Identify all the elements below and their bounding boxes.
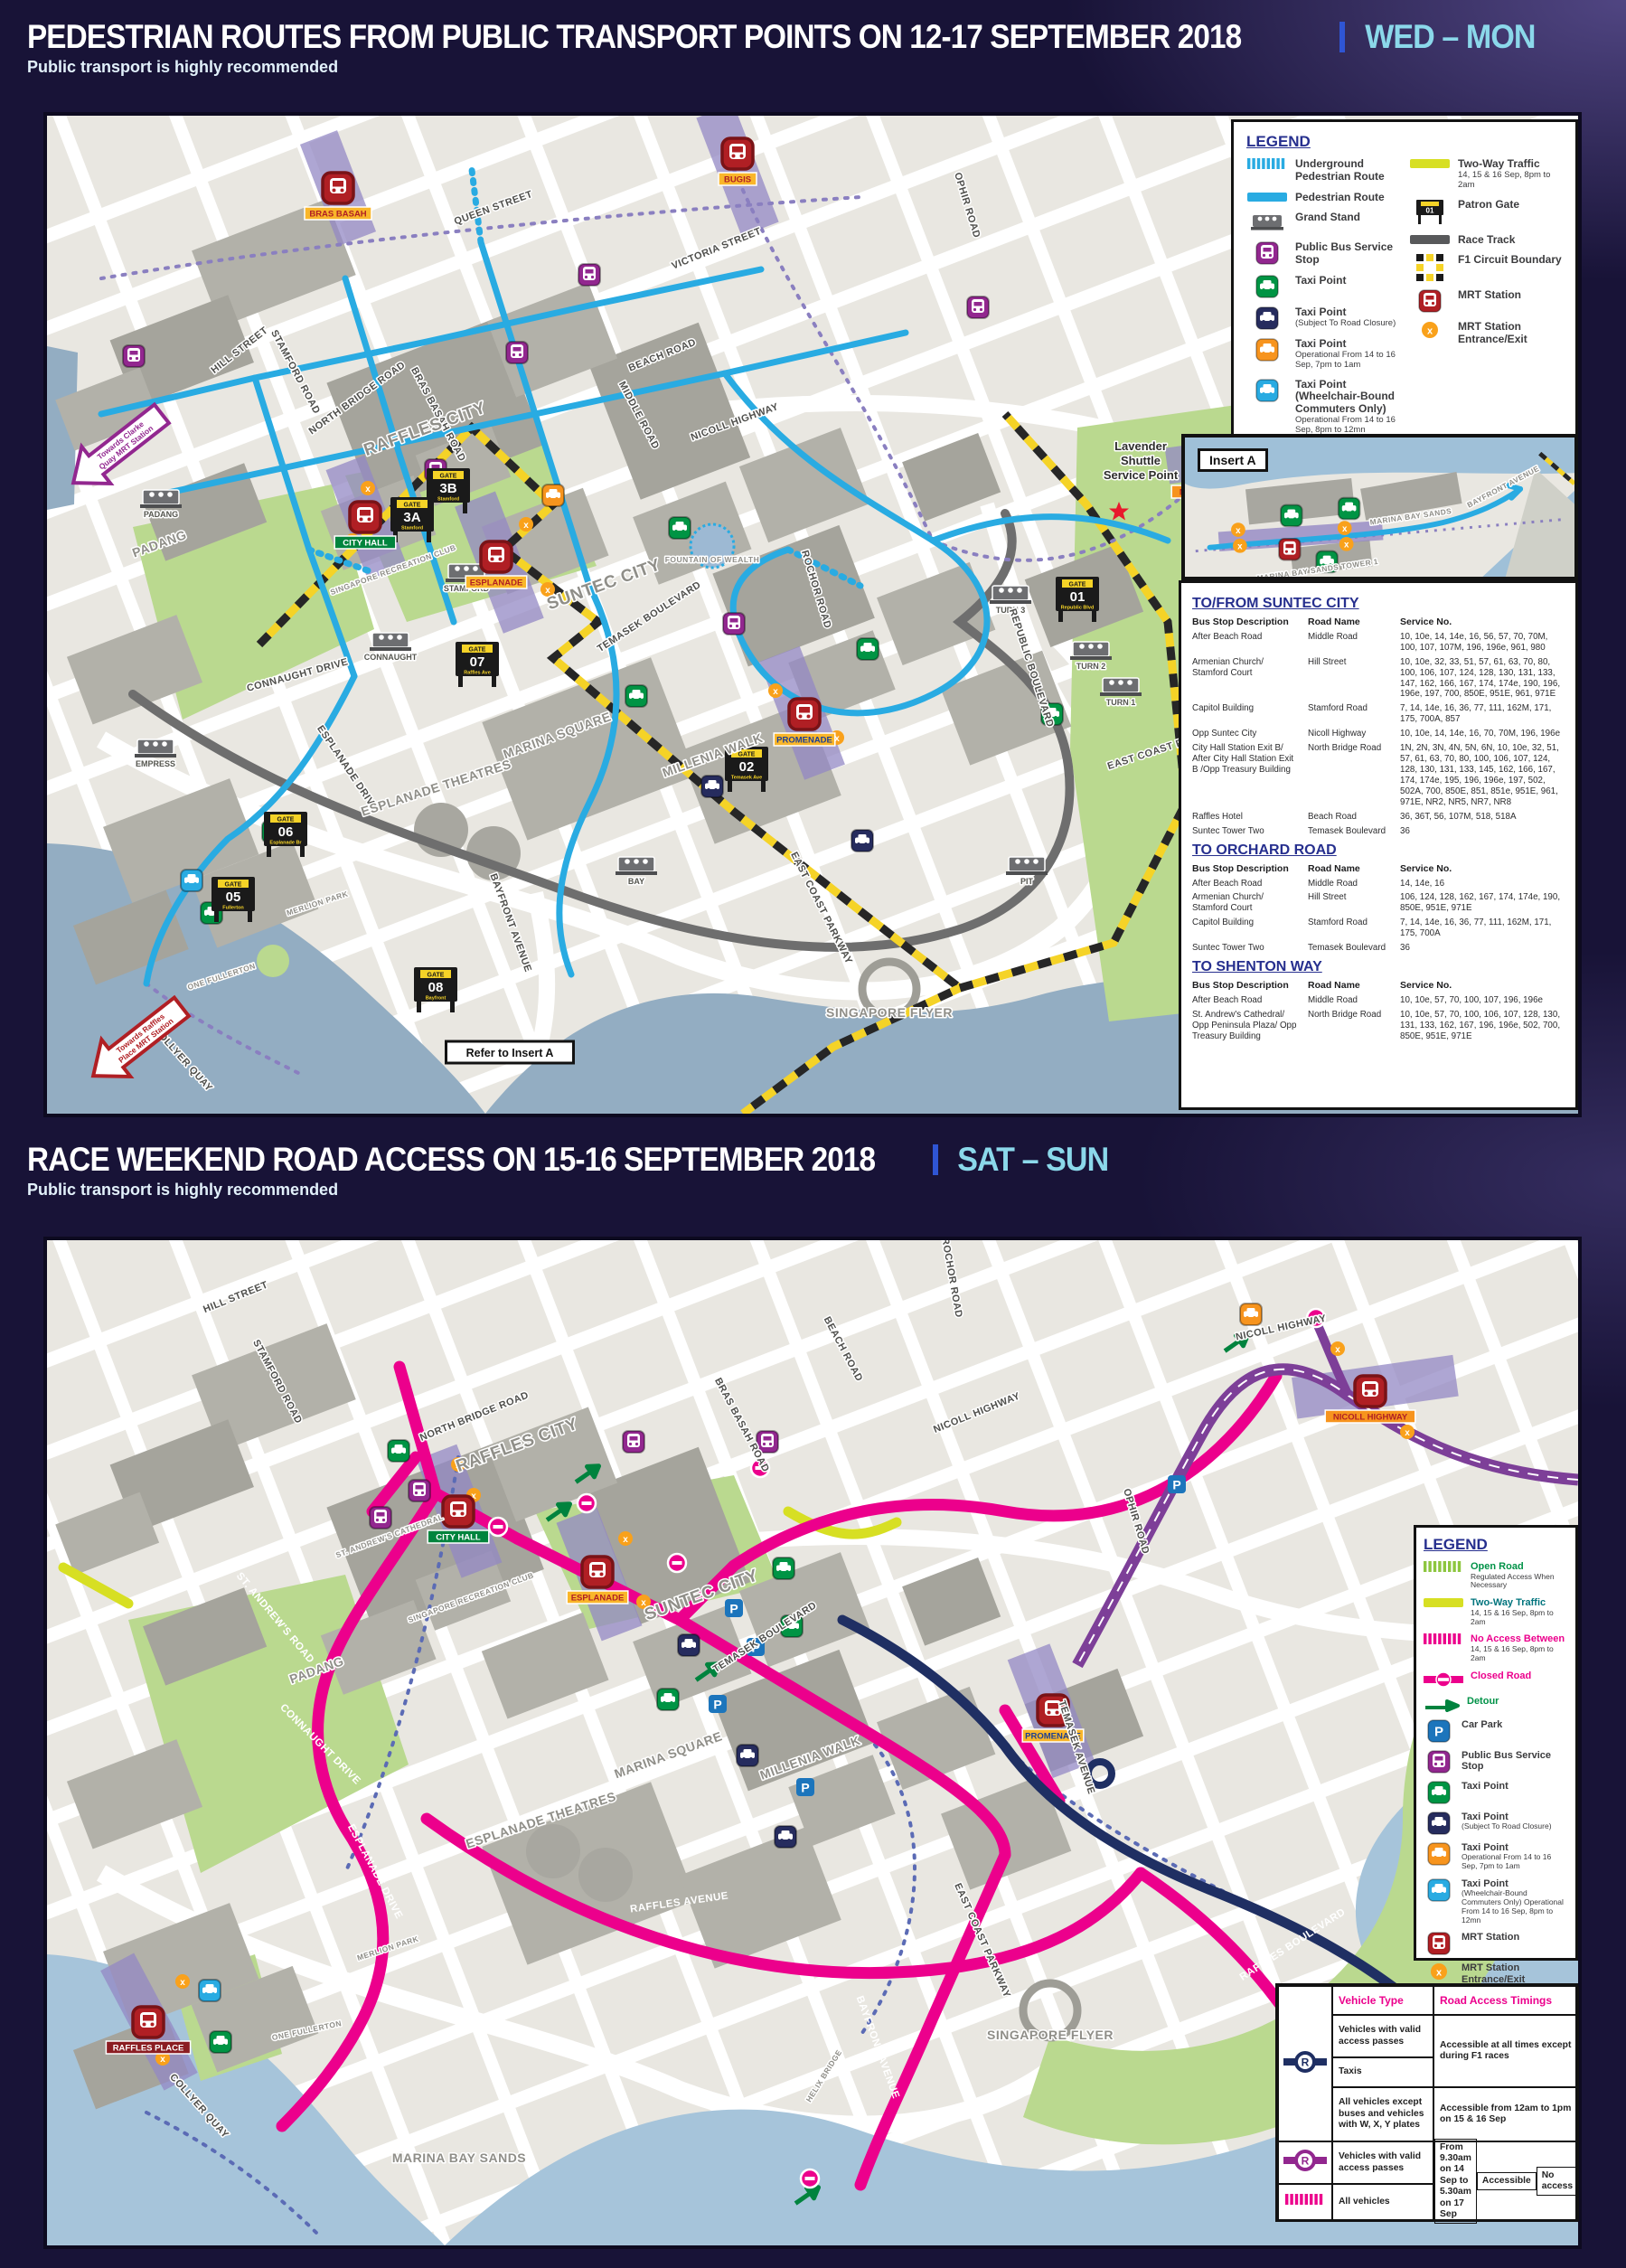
shuttle-note: Shuttle xyxy=(1121,454,1161,467)
bus-table-row: St. Andrew's Cathedral/ Opp Peninsula Pl… xyxy=(1192,1008,1565,1044)
map-label: FOUNTAIN OF WEALTH xyxy=(665,555,760,564)
svg-text:PADANG: PADANG xyxy=(144,510,178,519)
map1-legend: LEGEND Underground Pedestrian RoutePedes… xyxy=(1231,119,1578,438)
x-icon: x xyxy=(1338,521,1352,535)
legend-item-note: Regulated Access When Necessary xyxy=(1471,1573,1568,1591)
legend-item-label: MRT Station xyxy=(1458,289,1521,302)
service-numbers: 10, 10e, 57, 70, 100, 107, 196, 196e xyxy=(1400,995,1565,1006)
svg-text:CONNAUGHT: CONNAUGHT xyxy=(364,653,418,662)
road-navy-icon: R xyxy=(1278,1986,1332,2141)
svg-text:05: 05 xyxy=(226,889,241,905)
svg-text:Bayfront: Bayfront xyxy=(426,996,446,1002)
station-name: RAFFLES PLACE xyxy=(113,2044,184,2054)
svg-text:TURN 1: TURN 1 xyxy=(1106,698,1136,707)
road-access-table: R Vehicle Type Road Access Timings Vehic… xyxy=(1275,1983,1578,2222)
road-name: Nicoll Highway xyxy=(1308,729,1393,739)
legend-item-label: Public Bus Service Stop xyxy=(1462,1750,1568,1773)
legend-item-note: Operational From 14 to 16 Sep, 7pm to 1a… xyxy=(1462,1853,1568,1871)
legend-item: 01Patron Gate xyxy=(1409,199,1563,226)
x-icon: x xyxy=(1400,1425,1415,1439)
legend-item: Taxi Point(Subject To Road Closure) xyxy=(1424,1812,1568,1835)
pedestrian-route-icon xyxy=(1246,192,1288,202)
ring-icon xyxy=(801,2169,819,2188)
legend-item-label: No Access Between14, 15 & 16 Sep, 8pm to… xyxy=(1471,1633,1568,1662)
bus-table-row: After Beach RoadMiddle Road10, 10e, 14, … xyxy=(1192,630,1565,655)
station-name: BRAS BASAH xyxy=(309,210,366,220)
taxi-green-icon xyxy=(1246,275,1288,298)
road-name: North Bridge Road xyxy=(1308,743,1393,808)
legend-item: Taxi Point xyxy=(1246,275,1400,298)
svg-text:TURN 2: TURN 2 xyxy=(1076,662,1106,671)
section1-header: PEDESTRIAN ROUTES FROM PUBLIC TRANSPORT … xyxy=(27,18,1543,77)
road-name: Hill Street xyxy=(1308,892,1393,914)
legend-item-label: F1 Circuit Boundary xyxy=(1458,254,1562,267)
bus-table-title: TO/FROM SUNTEC CITY xyxy=(1192,596,1565,612)
bus-stop-description: Capitol Building xyxy=(1192,703,1301,725)
bus-stop-description: St. Andrew's Cathedral/ Opp Peninsula Pl… xyxy=(1192,1010,1301,1042)
bus-icon xyxy=(506,342,528,363)
service-numbers: 10, 10e, 14, 14e, 16, 70, 70M, 196, 196e xyxy=(1400,729,1565,739)
svg-text:PIT: PIT xyxy=(1020,877,1034,886)
legend-item: Detour xyxy=(1424,1696,1568,1712)
service-numbers: 10, 10e, 14, 14e, 16, 56, 57, 70, 70M, 1… xyxy=(1400,632,1565,654)
service-numbers: 36 xyxy=(1400,826,1565,837)
taxi-green-icon xyxy=(1281,505,1302,527)
bus-table-title: TO SHENTON WAY xyxy=(1192,959,1565,975)
bus-table-row: Capitol BuildingStamford Road7, 14, 14e,… xyxy=(1192,701,1565,727)
timing-cell: Accessible from 12am to 1pm on 15 & 16 S… xyxy=(1433,2087,1579,2141)
section1-subtitle: Public transport is highly recommended xyxy=(27,58,1543,77)
legend-item-note: 14, 15 & 16 Sep, 8pm to 2am xyxy=(1471,1609,1568,1627)
two-way-icon xyxy=(1424,1597,1463,1608)
underground-route-icon xyxy=(1246,158,1288,171)
svg-text:GATE: GATE xyxy=(404,503,421,509)
legend-item-note: 14, 15 & 16 Sep, 8pm to 2am xyxy=(1458,171,1563,191)
taxi-green-icon xyxy=(1339,498,1360,520)
race-track-icon xyxy=(1409,234,1451,245)
bus-table-header: Service No. xyxy=(1400,616,1565,628)
legend-item-label: Taxi Point(Wheelchair-Bound Commuters On… xyxy=(1462,1878,1568,1925)
bus-icon xyxy=(623,1431,644,1453)
svg-text:x: x xyxy=(1436,1968,1443,1979)
svg-text:GATE: GATE xyxy=(469,647,486,654)
x-icon: x xyxy=(519,517,533,532)
legend-item: Taxi Point(Wheelchair-Bound Commuters On… xyxy=(1424,1878,1568,1925)
legend-item-label: Underground Pedestrian Route xyxy=(1295,158,1400,184)
legend-item: Race Track xyxy=(1409,234,1563,247)
bus-table-row: City Hall Station Exit B/ After City Hal… xyxy=(1192,741,1565,810)
map-label: SINGAPORE FLYER xyxy=(987,2028,1114,2042)
x-icon: x xyxy=(1233,539,1247,553)
taxi-blue-icon xyxy=(181,870,202,891)
bus-stop-description: City Hall Station Exit B/ After City Hal… xyxy=(1192,743,1301,808)
two-way-icon xyxy=(1409,158,1451,169)
svg-text:x: x xyxy=(523,521,529,531)
legend-item-label: Taxi Point(Subject To Road Closure) xyxy=(1462,1812,1552,1831)
svg-text:x: x xyxy=(160,2055,165,2065)
mrt-station: BUGIS xyxy=(719,138,757,185)
insert-a-panel: xxxx MARINA BAY SANDSBAYFRONT AVENUEMARI… xyxy=(1181,434,1578,580)
section1-title: PEDESTRIAN ROUTES FROM PUBLIC TRANSPORT … xyxy=(27,18,1241,56)
svg-text:BAY: BAY xyxy=(628,877,644,886)
legend-item-label: MRT Station Entrance/Exit xyxy=(1462,1962,1568,1985)
road-name: Beach Road xyxy=(1308,812,1393,823)
mrt-icon xyxy=(1279,539,1301,560)
vehicle-type-cell: All vehicles except buses and vehicles w… xyxy=(1332,2087,1433,2141)
legend-item-label: Race Track xyxy=(1458,234,1515,247)
section2-header: RACE WEEKEND ROAD ACCESS ON 15-16 SEPTEM… xyxy=(27,1141,1115,1200)
legend-item: PCar Park xyxy=(1424,1719,1568,1743)
mrt-icon xyxy=(1409,289,1451,313)
taxi-orange-icon xyxy=(1424,1842,1454,1866)
legend-item: MRT Station xyxy=(1424,1932,1568,1955)
road-name: Stamford Road xyxy=(1308,918,1393,939)
svg-text:x: x xyxy=(180,1978,185,1988)
legend-item: Taxi Point (Wheelchair-Bound Commuters O… xyxy=(1246,379,1400,436)
taxi-navy-icon xyxy=(1246,306,1288,330)
no-access-icon xyxy=(1424,1633,1463,1646)
taxi-green-icon xyxy=(657,1689,679,1710)
bus-icon xyxy=(370,1507,391,1529)
legend-item-label: Car Park xyxy=(1462,1719,1502,1731)
road-name: Middle Road xyxy=(1308,995,1393,1006)
x-icon: x xyxy=(1231,522,1245,537)
legend-item-label: MRT Station Entrance/Exit xyxy=(1458,321,1563,346)
vehicle-type-cell: Vehicles with valid access passes xyxy=(1332,2141,1433,2184)
station-name: CITY HALL xyxy=(436,1533,481,1543)
svg-text:GATE: GATE xyxy=(738,752,756,758)
car-park-icon: P xyxy=(1424,1719,1454,1743)
svg-text:3A: 3A xyxy=(403,510,420,525)
legend-item-label: Taxi PointOperational From 14 to 16 Sep,… xyxy=(1462,1842,1568,1871)
bus-stop-description: After Beach Road xyxy=(1192,632,1301,654)
grand-stand-icon: PADANG xyxy=(140,490,182,519)
taxi-navy-icon xyxy=(1424,1812,1454,1835)
legend-item: Pedestrian Route xyxy=(1246,192,1400,204)
map2-panel: PPPPPxxxxxxxx CITY HALLESPLANADEPROMENAD… xyxy=(43,1237,1582,2249)
road-name: Stamford Road xyxy=(1308,703,1393,725)
bus-table-row: Raffles HotelBeach Road36, 36T, 56, 107M… xyxy=(1192,810,1565,824)
poster: PEDESTRIAN ROUTES FROM PUBLIC TRANSPORT … xyxy=(0,0,1626,2268)
dash-bar xyxy=(1424,1633,1463,1646)
legend-item: Closed Road xyxy=(1424,1670,1568,1689)
taxi-navy-icon xyxy=(851,830,873,852)
bus-table-row: Capitol BuildingStamford Road7, 14, 14e,… xyxy=(1192,916,1565,941)
svg-text:x: x xyxy=(1405,1428,1410,1438)
title-divider-2 xyxy=(933,1144,938,1175)
mrt-icon xyxy=(1424,1932,1454,1955)
bus-icon xyxy=(409,1480,430,1501)
legend-item: MRT Station xyxy=(1409,289,1563,313)
legend-item-label: Pedestrian Route xyxy=(1295,192,1385,204)
taxi-green-icon xyxy=(1424,1781,1454,1804)
svg-text:x: x xyxy=(623,1535,628,1545)
legend-item: Open RoadRegulated Access When Necessary xyxy=(1424,1561,1568,1590)
bus-table-row: Suntec Tower TwoTemasek Boulevard36 xyxy=(1192,824,1565,839)
legend-item-label: Taxi Point xyxy=(1295,275,1346,287)
bus-stop-icon xyxy=(1246,241,1288,265)
ring-icon xyxy=(578,1494,596,1512)
p-icon: P xyxy=(1168,1475,1186,1493)
ring-icon xyxy=(489,1518,507,1536)
x-icon: x xyxy=(618,1531,633,1546)
bus-stop-description: Suntec Tower Two xyxy=(1192,826,1301,837)
bus-table-header: Service No. xyxy=(1400,863,1565,875)
refer-insert-a-label: Refer to Insert A xyxy=(466,1047,554,1059)
svg-text:P: P xyxy=(1434,1724,1443,1739)
svg-text:x: x xyxy=(1342,524,1348,534)
legend-item-note: Operational From 14 to 16 Sep, 7pm to 1a… xyxy=(1295,351,1400,371)
legend-item-label: Two-Way Traffic14, 15 & 16 Sep, 8pm to 2… xyxy=(1458,158,1563,191)
legend-item: Underground Pedestrian Route xyxy=(1246,158,1400,184)
legend-item-label: Patron Gate xyxy=(1458,199,1519,212)
vehicle-type-header: Vehicle Type xyxy=(1332,1986,1433,2015)
patron-gate-icon: 01 xyxy=(1409,199,1451,226)
svg-text:x: x xyxy=(1427,326,1433,337)
bus-tables-panel: TO/FROM SUNTEC CITYBus Stop DescriptionR… xyxy=(1179,580,1578,1110)
timing-cell: Accessible at all times except during F1… xyxy=(1433,2015,1579,2087)
service-numbers: 1N, 2N, 3N, 4N, 5N, 6N, 10, 10e, 32, 51,… xyxy=(1400,743,1565,808)
svg-text:R: R xyxy=(1302,2056,1310,2068)
bus-table-header-row: Bus Stop DescriptionRoad NameService No. xyxy=(1192,978,1565,993)
svg-text:Raffles Ave: Raffles Ave xyxy=(464,671,491,676)
legend-item-label: Two-Way Traffic14, 15 & 16 Sep, 8pm to 2… xyxy=(1471,1597,1568,1626)
grand-stand-icon: TURN 2 xyxy=(1070,642,1112,671)
legend-item: Public Bus Service Stop xyxy=(1424,1750,1568,1774)
legend-item: Two-Way Traffic14, 15 & 16 Sep, 8pm to 2… xyxy=(1424,1597,1568,1626)
timing-cell: From 9.30am on 14 Sep to 5.30am on 17 Se… xyxy=(1434,2139,1477,2224)
x-icon: x xyxy=(1330,1341,1345,1356)
svg-text:GATE: GATE xyxy=(1069,582,1086,588)
svg-text:3B: 3B xyxy=(439,481,456,496)
bus-table-header: Road Name xyxy=(1308,980,1393,992)
legend-item: F1 Circuit Boundary xyxy=(1409,254,1563,281)
svg-text:x: x xyxy=(365,485,371,494)
svg-text:P: P xyxy=(713,1698,721,1712)
taxi-navy-icon xyxy=(775,1826,796,1848)
map1-panel: xxxxxx PADANGCONNAUGHTSTAMFORDEMPRESSBAY… xyxy=(43,112,1582,1117)
taxi-orange-icon xyxy=(1240,1303,1262,1325)
legend-item-note: 14, 15 & 16 Sep, 8pm to 2am xyxy=(1471,1645,1568,1663)
svg-text:x: x xyxy=(1335,1345,1340,1355)
bus-table-header: Bus Stop Description xyxy=(1192,980,1301,992)
map2-legend: LEGEND Open RoadRegulated Access When Ne… xyxy=(1414,1525,1578,1961)
bus-table-header-row: Bus Stop DescriptionRoad NameService No. xyxy=(1192,615,1565,630)
svg-text:x: x xyxy=(1236,526,1241,536)
road-access-timings-header: Road Access Timings xyxy=(1433,1986,1579,2015)
svg-text:Fullerton: Fullerton xyxy=(222,906,244,911)
service-numbers: 106, 124, 128, 162, 167, 174, 174e, 190,… xyxy=(1400,892,1565,914)
svg-text:P: P xyxy=(729,1602,738,1616)
service-numbers: 14, 14e, 16 xyxy=(1400,879,1565,889)
legend-item-label: MRT Station xyxy=(1462,1932,1519,1943)
svg-text:P: P xyxy=(801,1781,809,1795)
svg-text:02: 02 xyxy=(739,759,755,775)
p-icon: P xyxy=(796,1778,814,1796)
legend-item: xMRT Station Entrance/Exit xyxy=(1424,1962,1568,1985)
road-purple-icon: R xyxy=(1278,2141,1332,2184)
taxi-navy-icon xyxy=(701,776,723,797)
legend-item-label: Open RoadRegulated Access When Necessary xyxy=(1471,1561,1568,1590)
svg-text:GATE: GATE xyxy=(440,474,457,480)
legend-item-note: (Subject To Road Closure) xyxy=(1462,1822,1552,1831)
service-numbers: 7, 14, 14e, 16, 36, 77, 111, 162M, 171, … xyxy=(1400,703,1565,725)
svg-text:Esplanade Br: Esplanade Br xyxy=(269,841,302,846)
timing-split-cell: From 9.30am on 14 Sep to 5.30am on 17 Se… xyxy=(1433,2141,1579,2221)
legend-item: Public Bus Service Stop xyxy=(1246,241,1400,267)
station-name: ESPLANADE xyxy=(470,579,523,588)
svg-text:x: x xyxy=(773,687,778,697)
dash-bar xyxy=(1247,158,1287,171)
bus-icon xyxy=(967,296,989,318)
road-name: Middle Road xyxy=(1308,879,1393,889)
section2-subtitle: Public transport is highly recommended xyxy=(27,1181,1115,1200)
bus-stop-description: After Beach Road xyxy=(1192,879,1301,889)
svg-text:R: R xyxy=(1302,2155,1310,2168)
taxi-green-icon xyxy=(388,1440,409,1462)
taxi-green-icon xyxy=(625,685,647,707)
bus-table-row: Suntec Tower TwoTemasek Boulevard36 xyxy=(1192,941,1565,955)
section2-title: RACE WEEKEND ROAD ACCESS ON 15-16 SEPTEM… xyxy=(27,1141,875,1179)
taxi-blue-icon xyxy=(1246,379,1288,402)
insert-a-title: Insert A xyxy=(1198,448,1268,472)
grand-stand-icon: TURN 1 xyxy=(1100,678,1142,707)
p-icon: P xyxy=(725,1599,743,1617)
taxi-green-icon xyxy=(210,2031,231,2053)
bus-stop-description: Opp Suntec City xyxy=(1192,729,1301,739)
section2-days: SAT – SUN xyxy=(958,1141,1109,1179)
esplanade-theatre xyxy=(526,1824,580,1878)
shuttle-note: Service Point xyxy=(1104,468,1179,482)
svg-text:Stamford: Stamford xyxy=(401,526,423,532)
bus-icon xyxy=(123,345,145,367)
map-label: SINGAPORE FLYER xyxy=(826,1005,953,1020)
closed-road-icon xyxy=(1424,1670,1463,1689)
road-name: Hill Street xyxy=(1308,657,1393,701)
svg-text:Republic Blvd: Republic Blvd xyxy=(1061,606,1095,611)
x-icon: x xyxy=(768,683,783,698)
legend-item-label: Detour xyxy=(1467,1696,1499,1708)
mrt-exit-icon: x xyxy=(1424,1962,1454,1981)
road-name: Temasek Boulevard xyxy=(1308,943,1393,954)
vehicle-type-cell: Vehicles with valid access passes xyxy=(1332,2015,1433,2057)
road-name: North Bridge Road xyxy=(1308,1010,1393,1042)
vehicle-type-cell: Taxis xyxy=(1332,2057,1433,2087)
shuttle-note: Lavender xyxy=(1114,439,1167,453)
bus-stop-icon xyxy=(1424,1750,1454,1774)
svg-text:GATE: GATE xyxy=(225,882,242,889)
taxi-navy-icon xyxy=(737,1745,758,1766)
svg-text:x: x xyxy=(1344,541,1349,551)
bus-table-header: Bus Stop Description xyxy=(1192,863,1301,875)
legend-item: Taxi Point xyxy=(1424,1781,1568,1804)
legend-item: Grand Stand xyxy=(1246,212,1400,233)
map-label: MARINA BAY SANDS xyxy=(392,2150,526,2165)
legend-item: No Access Between14, 15 & 16 Sep, 8pm to… xyxy=(1424,1633,1568,1662)
taxi-blue-icon xyxy=(199,1980,221,2001)
legend-item-note: (Subject To Road Closure) xyxy=(1295,319,1396,329)
service-numbers: 10, 10e, 57, 70, 100, 106, 107, 128, 130… xyxy=(1400,1010,1565,1042)
station-name: CITY HALL xyxy=(343,539,388,549)
detour-icon xyxy=(1424,1696,1460,1712)
svg-text:Temasek Ave: Temasek Ave xyxy=(731,776,762,781)
legend-item-label: Closed Road xyxy=(1471,1670,1531,1682)
bus-icon xyxy=(578,264,600,286)
bus-table-row: Armenian Church/ Stamford CourtHill Stre… xyxy=(1192,890,1565,916)
legend1-title: LEGEND xyxy=(1246,133,1563,151)
x-icon: x xyxy=(1339,537,1354,551)
bus-table-header: Road Name xyxy=(1308,616,1393,628)
legend2-title: LEGEND xyxy=(1424,1536,1568,1554)
bus-table-row: After Beach RoadMiddle Road14, 14e, 16 xyxy=(1192,877,1565,891)
svg-text:06: 06 xyxy=(278,824,294,840)
no-access-icon xyxy=(1278,2184,1332,2221)
bus-stop-description: Armenian Church/ Stamford Court xyxy=(1192,892,1301,914)
ring-icon xyxy=(668,1554,686,1572)
vehicle-type-cell: All vehicles xyxy=(1332,2184,1433,2221)
legend-item-label: Grand Stand xyxy=(1295,212,1360,224)
svg-text:01: 01 xyxy=(1070,589,1086,605)
service-numbers: 36, 36T, 56, 107M, 518, 518A xyxy=(1400,812,1565,823)
bus-table-title: TO ORCHARD ROAD xyxy=(1192,842,1565,859)
bus-table-header: Bus Stop Description xyxy=(1192,616,1301,628)
legend-item: Taxi Point(Subject To Road Closure) xyxy=(1246,306,1400,330)
bus-table-header-row: Bus Stop DescriptionRoad NameService No. xyxy=(1192,861,1565,877)
svg-text:08: 08 xyxy=(428,980,444,995)
svg-text:GATE: GATE xyxy=(277,817,295,823)
legend-item-note: Operational From 14 to 16 Sep, 8pm to 12… xyxy=(1295,416,1400,436)
bus-stop-description: Armenian Church/ Stamford Court xyxy=(1192,657,1301,701)
f1-boundary-icon xyxy=(1409,254,1451,281)
bus-table-row: After Beach RoadMiddle Road10, 10e, 57, … xyxy=(1192,993,1565,1008)
bus-icon xyxy=(723,613,745,635)
legend-item-label: Taxi Point xyxy=(1462,1781,1509,1793)
service-numbers: 10, 10e, 32, 33, 51, 57, 61, 63, 70, 80,… xyxy=(1400,657,1565,701)
bus-table-row: Opp Suntec CityNicoll Highway10, 10e, 14… xyxy=(1192,727,1565,741)
svg-text:Stamford: Stamford xyxy=(437,497,459,503)
legend-item-note: (Wheelchair-Bound Commuters Only) Operat… xyxy=(1462,1889,1568,1925)
service-numbers: 36 xyxy=(1400,943,1565,954)
road-name: Middle Road xyxy=(1308,632,1393,654)
bus-table-header: Road Name xyxy=(1308,863,1393,875)
legend-item: Taxi PointOperational From 14 to 16 Sep,… xyxy=(1424,1842,1568,1871)
bus-stop-description: Raffles Hotel xyxy=(1192,812,1301,823)
taxi-blue-icon xyxy=(1424,1878,1454,1902)
esplanade-theatre xyxy=(578,1848,633,1902)
legend-item-label: Taxi Point(Subject To Road Closure) xyxy=(1295,306,1396,329)
legend-item: xMRT Station Entrance/Exit xyxy=(1409,321,1563,346)
road-name: Temasek Boulevard xyxy=(1308,826,1393,837)
dash-bar xyxy=(1285,2194,1325,2207)
svg-text:P: P xyxy=(1172,1478,1180,1492)
svg-text:GATE: GATE xyxy=(428,973,445,979)
grand-stand-icon xyxy=(1246,212,1288,233)
bus-table-header: Service No. xyxy=(1400,980,1565,992)
taxi-green-icon xyxy=(857,638,879,660)
svg-text:07: 07 xyxy=(470,654,485,670)
station-name: NICOLL HIGHWAY xyxy=(1333,1413,1408,1423)
title-divider-1 xyxy=(1339,22,1345,52)
svg-text:EMPRESS: EMPRESS xyxy=(136,759,175,768)
taxi-green-icon xyxy=(773,1557,794,1579)
bus-stop-description: Suntec Tower Two xyxy=(1192,943,1301,954)
legend-item-label: Public Bus Service Stop xyxy=(1295,241,1400,267)
legend-item-label: Taxi PointOperational From 14 to 16 Sep,… xyxy=(1295,338,1400,371)
bus-stop-description: Capitol Building xyxy=(1192,918,1301,939)
x-icon: x xyxy=(175,1974,190,1989)
taxi-orange-icon xyxy=(1246,338,1288,362)
access-cell: Accessible xyxy=(1477,2172,1537,2190)
